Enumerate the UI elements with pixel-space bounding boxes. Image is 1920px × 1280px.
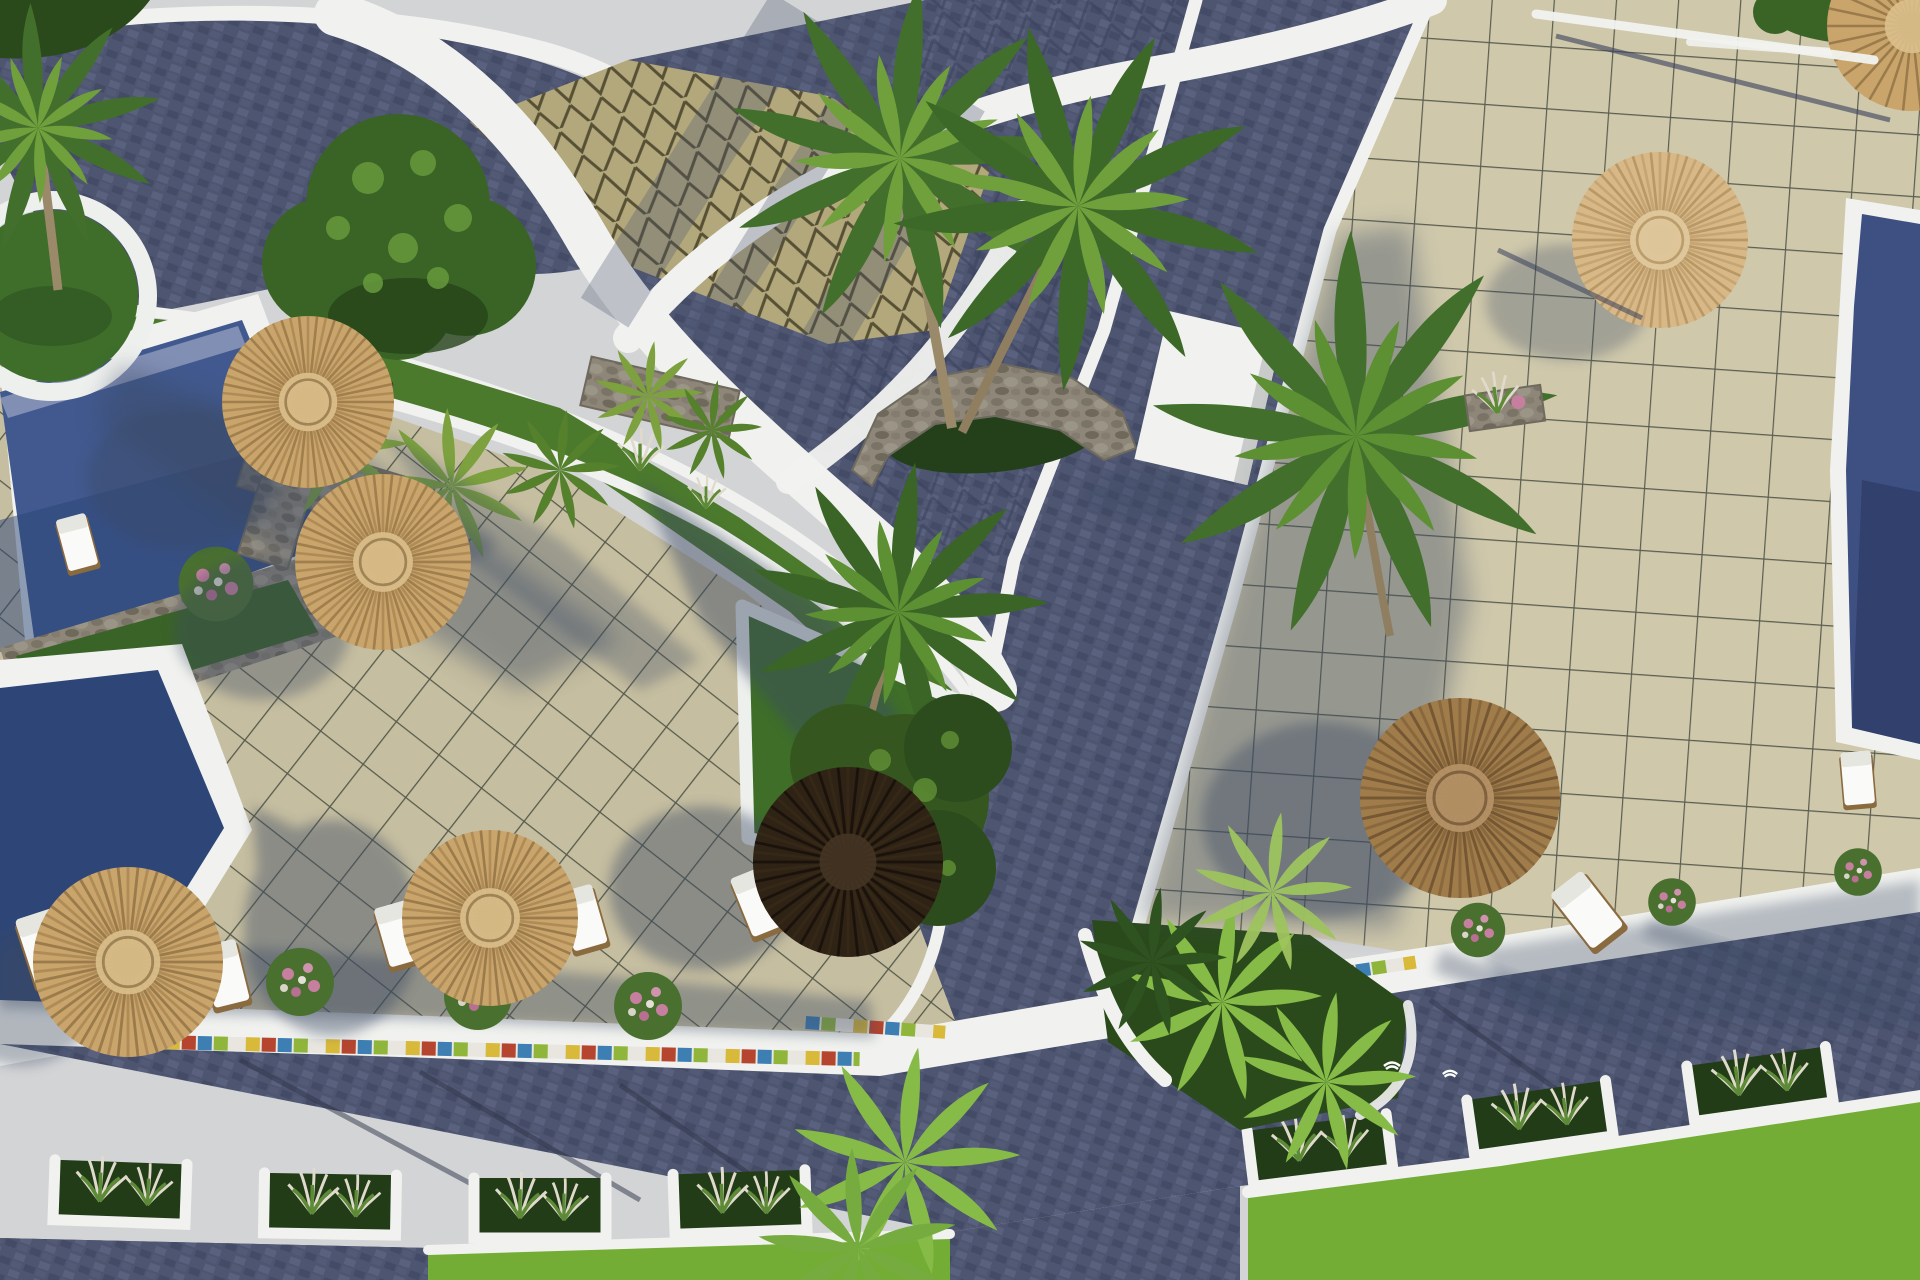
lounger (1839, 750, 1877, 810)
right-pool (1830, 198, 1920, 760)
right-pool-depth (1852, 480, 1920, 744)
wall-shadow (1082, 470, 1210, 522)
aerial-resort-render: Aerial 3D render of a resort courtyard: … (0, 0, 1920, 1280)
render-canvas: Aerial 3D render of a resort courtyard: … (0, 0, 1920, 1280)
